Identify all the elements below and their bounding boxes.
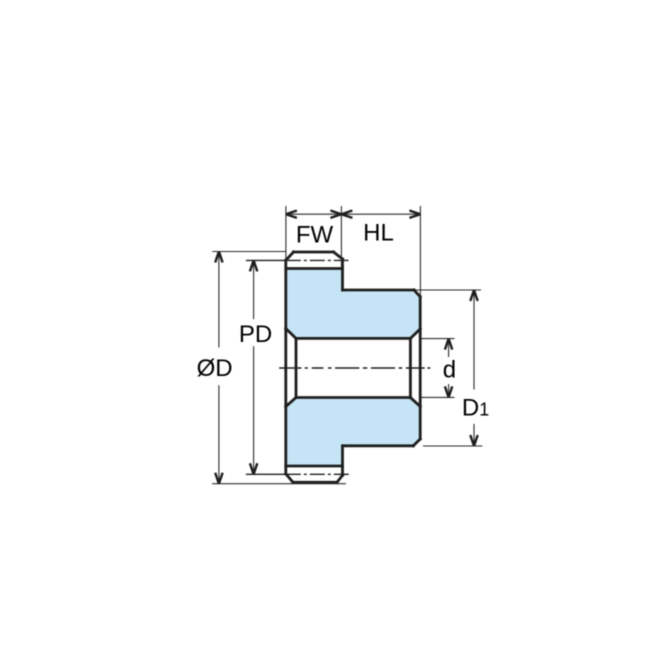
svg-text:D1: D1 bbox=[462, 395, 489, 422]
svg-text:ØD: ØD bbox=[197, 355, 233, 382]
svg-text:d: d bbox=[443, 357, 456, 384]
svg-text:FW: FW bbox=[296, 222, 334, 249]
svg-text:HL: HL bbox=[363, 220, 394, 247]
svg-text:PD: PD bbox=[239, 321, 272, 348]
